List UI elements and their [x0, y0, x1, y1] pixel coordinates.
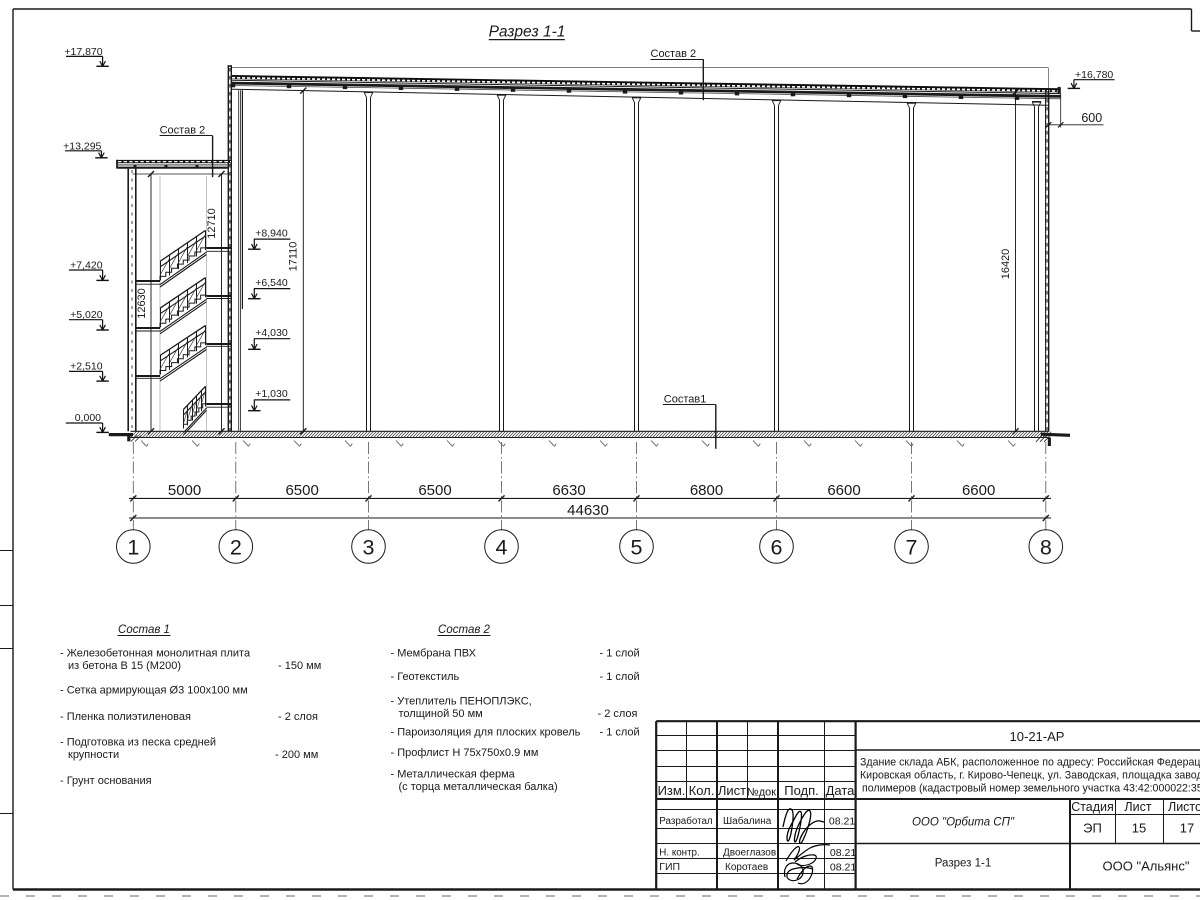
svg-text:- 200 мм: - 200 мм	[275, 749, 318, 761]
svg-text:- Подготовка из песка средней: - Подготовка из песка средней	[60, 737, 216, 749]
svg-text:Состав 2: Состав 2	[160, 125, 206, 137]
svg-text:№док.: №док.	[747, 787, 779, 799]
svg-text:Изм.: Изм.	[658, 783, 686, 798]
svg-text:6500: 6500	[418, 482, 451, 499]
svg-text:15: 15	[1132, 821, 1146, 836]
svg-text:12630: 12630	[136, 288, 148, 319]
svg-text:6: 6	[771, 535, 783, 559]
svg-text:- Мембрана ПВХ: - Мембрана ПВХ	[391, 648, 477, 660]
svg-text:6800: 6800	[690, 482, 723, 499]
svg-text:- 1 слой: - 1 слой	[600, 727, 640, 739]
svg-text:из бетона В 15 (М200): из бетона В 15 (М200)	[68, 660, 181, 672]
svg-text:- 2 слоя: - 2 слоя	[598, 708, 638, 720]
svg-text:крупности: крупности	[68, 749, 119, 761]
svg-text:6600: 6600	[962, 482, 995, 499]
svg-text:- Геотекстиль: - Геотекстиль	[391, 671, 460, 683]
svg-text:- Железобетонная монолитная п: - Железобетонная монолитная плита	[60, 648, 251, 660]
svg-text:Листов: Листов	[1168, 800, 1200, 814]
svg-text:Двоеглазов: Двоеглазов	[723, 847, 776, 858]
svg-text:08.21: 08.21	[830, 847, 856, 859]
svg-text:+1,030: +1,030	[255, 388, 288, 400]
svg-text:3: 3	[363, 535, 375, 559]
svg-text:- Профлист Н 75х750х0.9 мм: - Профлист Н 75х750х0.9 мм	[391, 747, 539, 759]
svg-text:- Пленка полиэтиленовая: - Пленка полиэтиленовая	[60, 711, 191, 723]
svg-text:7: 7	[906, 535, 918, 559]
svg-text:Состав1: Состав1	[664, 393, 707, 405]
svg-text:4: 4	[496, 535, 508, 559]
svg-text:08.21: 08.21	[830, 861, 856, 873]
svg-text:полимеров (кадастровый номер з: полимеров (кадастровый номер земельного …	[862, 783, 1200, 795]
svg-text:6500: 6500	[285, 482, 318, 499]
svg-text:Коротаев: Коротаев	[725, 862, 768, 873]
svg-text:12710: 12710	[206, 208, 218, 239]
svg-text:- Грунт основания: - Грунт основания	[60, 775, 152, 787]
svg-text:ГИП: ГИП	[659, 861, 680, 873]
svg-text:- 2 слоя: - 2 слоя	[278, 711, 318, 723]
svg-text:(с торца металлическая балка): (с торца металлическая балка)	[399, 781, 558, 793]
svg-text:8: 8	[1040, 535, 1052, 559]
svg-text:2: 2	[230, 535, 242, 559]
svg-text:Лист: Лист	[1124, 800, 1151, 814]
svg-text:- Утеплитель ПЕНОПЛЭКС,: - Утеплитель ПЕНОПЛЭКС,	[391, 696, 532, 708]
svg-text:Кировская область, г. Кирово-Ч: Кировская область, г. Кирово-Чепецк, ул.…	[860, 770, 1200, 782]
svg-text:6630: 6630	[552, 482, 585, 499]
svg-text:Разработал: Разработал	[659, 816, 713, 827]
svg-text:- 1 слой: - 1 слой	[600, 648, 640, 660]
svg-text:600: 600	[1081, 111, 1102, 125]
svg-text:- 1 слой: - 1 слой	[600, 671, 640, 683]
svg-text:Состав 2: Состав 2	[651, 48, 697, 60]
svg-text:Разрез 1-1: Разрез 1-1	[935, 858, 991, 870]
svg-text:1: 1	[127, 535, 139, 559]
svg-text:Стадия: Стадия	[1071, 800, 1114, 814]
svg-text:- Пароизоляция для плоских кро: - Пароизоляция для плоских кровель	[391, 727, 581, 739]
svg-text:ООО "Альянс": ООО "Альянс"	[1103, 859, 1190, 874]
svg-text:Лист: Лист	[718, 783, 746, 798]
svg-text:- Металлическая ферма: - Металлическая ферма	[391, 769, 516, 781]
svg-text:10-21-АР: 10-21-АР	[1010, 729, 1065, 744]
svg-text:5: 5	[631, 535, 643, 559]
svg-text:ООО "Орбита СП": ООО "Орбита СП"	[912, 817, 1015, 829]
svg-text:Подп.: Подп.	[784, 783, 819, 798]
svg-text:ЭП: ЭП	[1083, 821, 1102, 836]
svg-text:- Сетка армирующая Ø3 100х100: - Сетка армирующая Ø3 100х100 мм	[60, 685, 248, 697]
svg-text:5000: 5000	[168, 482, 201, 499]
svg-text:17110: 17110	[288, 242, 300, 272]
svg-text:Состав 2: Состав 2	[438, 624, 490, 636]
svg-text:Состав 1: Состав 1	[118, 624, 170, 636]
svg-text:08.21: 08.21	[829, 816, 855, 828]
svg-text:- 150 мм: - 150 мм	[278, 660, 321, 672]
svg-text:толщиной 50 мм: толщиной 50 мм	[399, 708, 483, 720]
svg-text:+8,940: +8,940	[255, 227, 288, 239]
svg-text:Здание склада АБК, расположенн: Здание склада АБК, расположенное по адре…	[860, 757, 1200, 769]
svg-text:Н. контр.: Н. контр.	[659, 847, 699, 858]
svg-text:+4,030: +4,030	[255, 327, 288, 339]
svg-text:Разрез 1-1: Разрез 1-1	[489, 24, 566, 41]
svg-text:+6,540: +6,540	[255, 277, 288, 289]
svg-text:Шабалина: Шабалина	[723, 815, 772, 827]
svg-text:Кол.: Кол.	[689, 783, 715, 798]
svg-text:6600: 6600	[827, 482, 860, 499]
svg-text:16420: 16420	[1000, 249, 1012, 280]
svg-text:17: 17	[1180, 821, 1194, 836]
svg-text:44630: 44630	[567, 502, 609, 519]
svg-text:Дата: Дата	[826, 783, 856, 798]
